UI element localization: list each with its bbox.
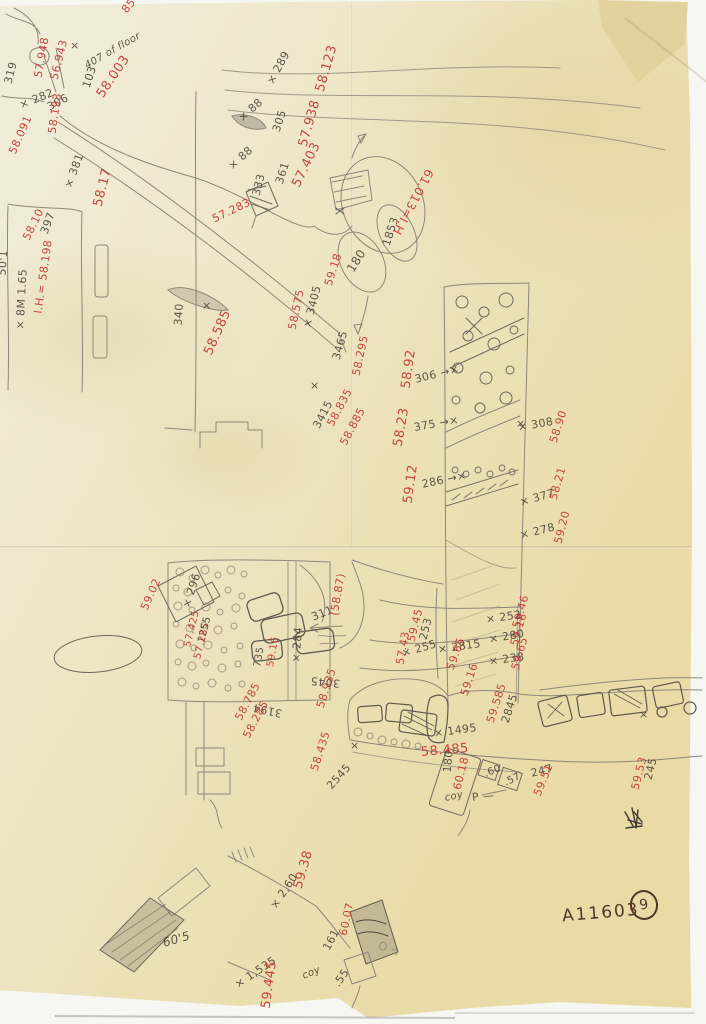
plant-scribble [625,808,642,828]
annotation: P — [471,790,494,803]
vertical-baulk-line [195,92,196,432]
annotation: × 284 [291,626,304,662]
annotation: 50'1 [0,250,9,276]
annotation: × [639,709,649,720]
annotation: × [70,40,80,51]
annotation: 340 [173,303,186,326]
annotation: × 8M 1.65 [15,268,29,329]
annotation: 180 [442,750,455,773]
contour-lines [222,67,665,150]
annotation: × [310,380,320,391]
scanned-field-drawing: 319306407 of floor57.94856.943×10358.003… [0,0,706,1024]
scan-edge-shadow-light [455,1012,695,1014]
annotation: × [202,300,212,311]
pencil-sketch [0,0,706,1024]
annotation: × [350,740,360,751]
